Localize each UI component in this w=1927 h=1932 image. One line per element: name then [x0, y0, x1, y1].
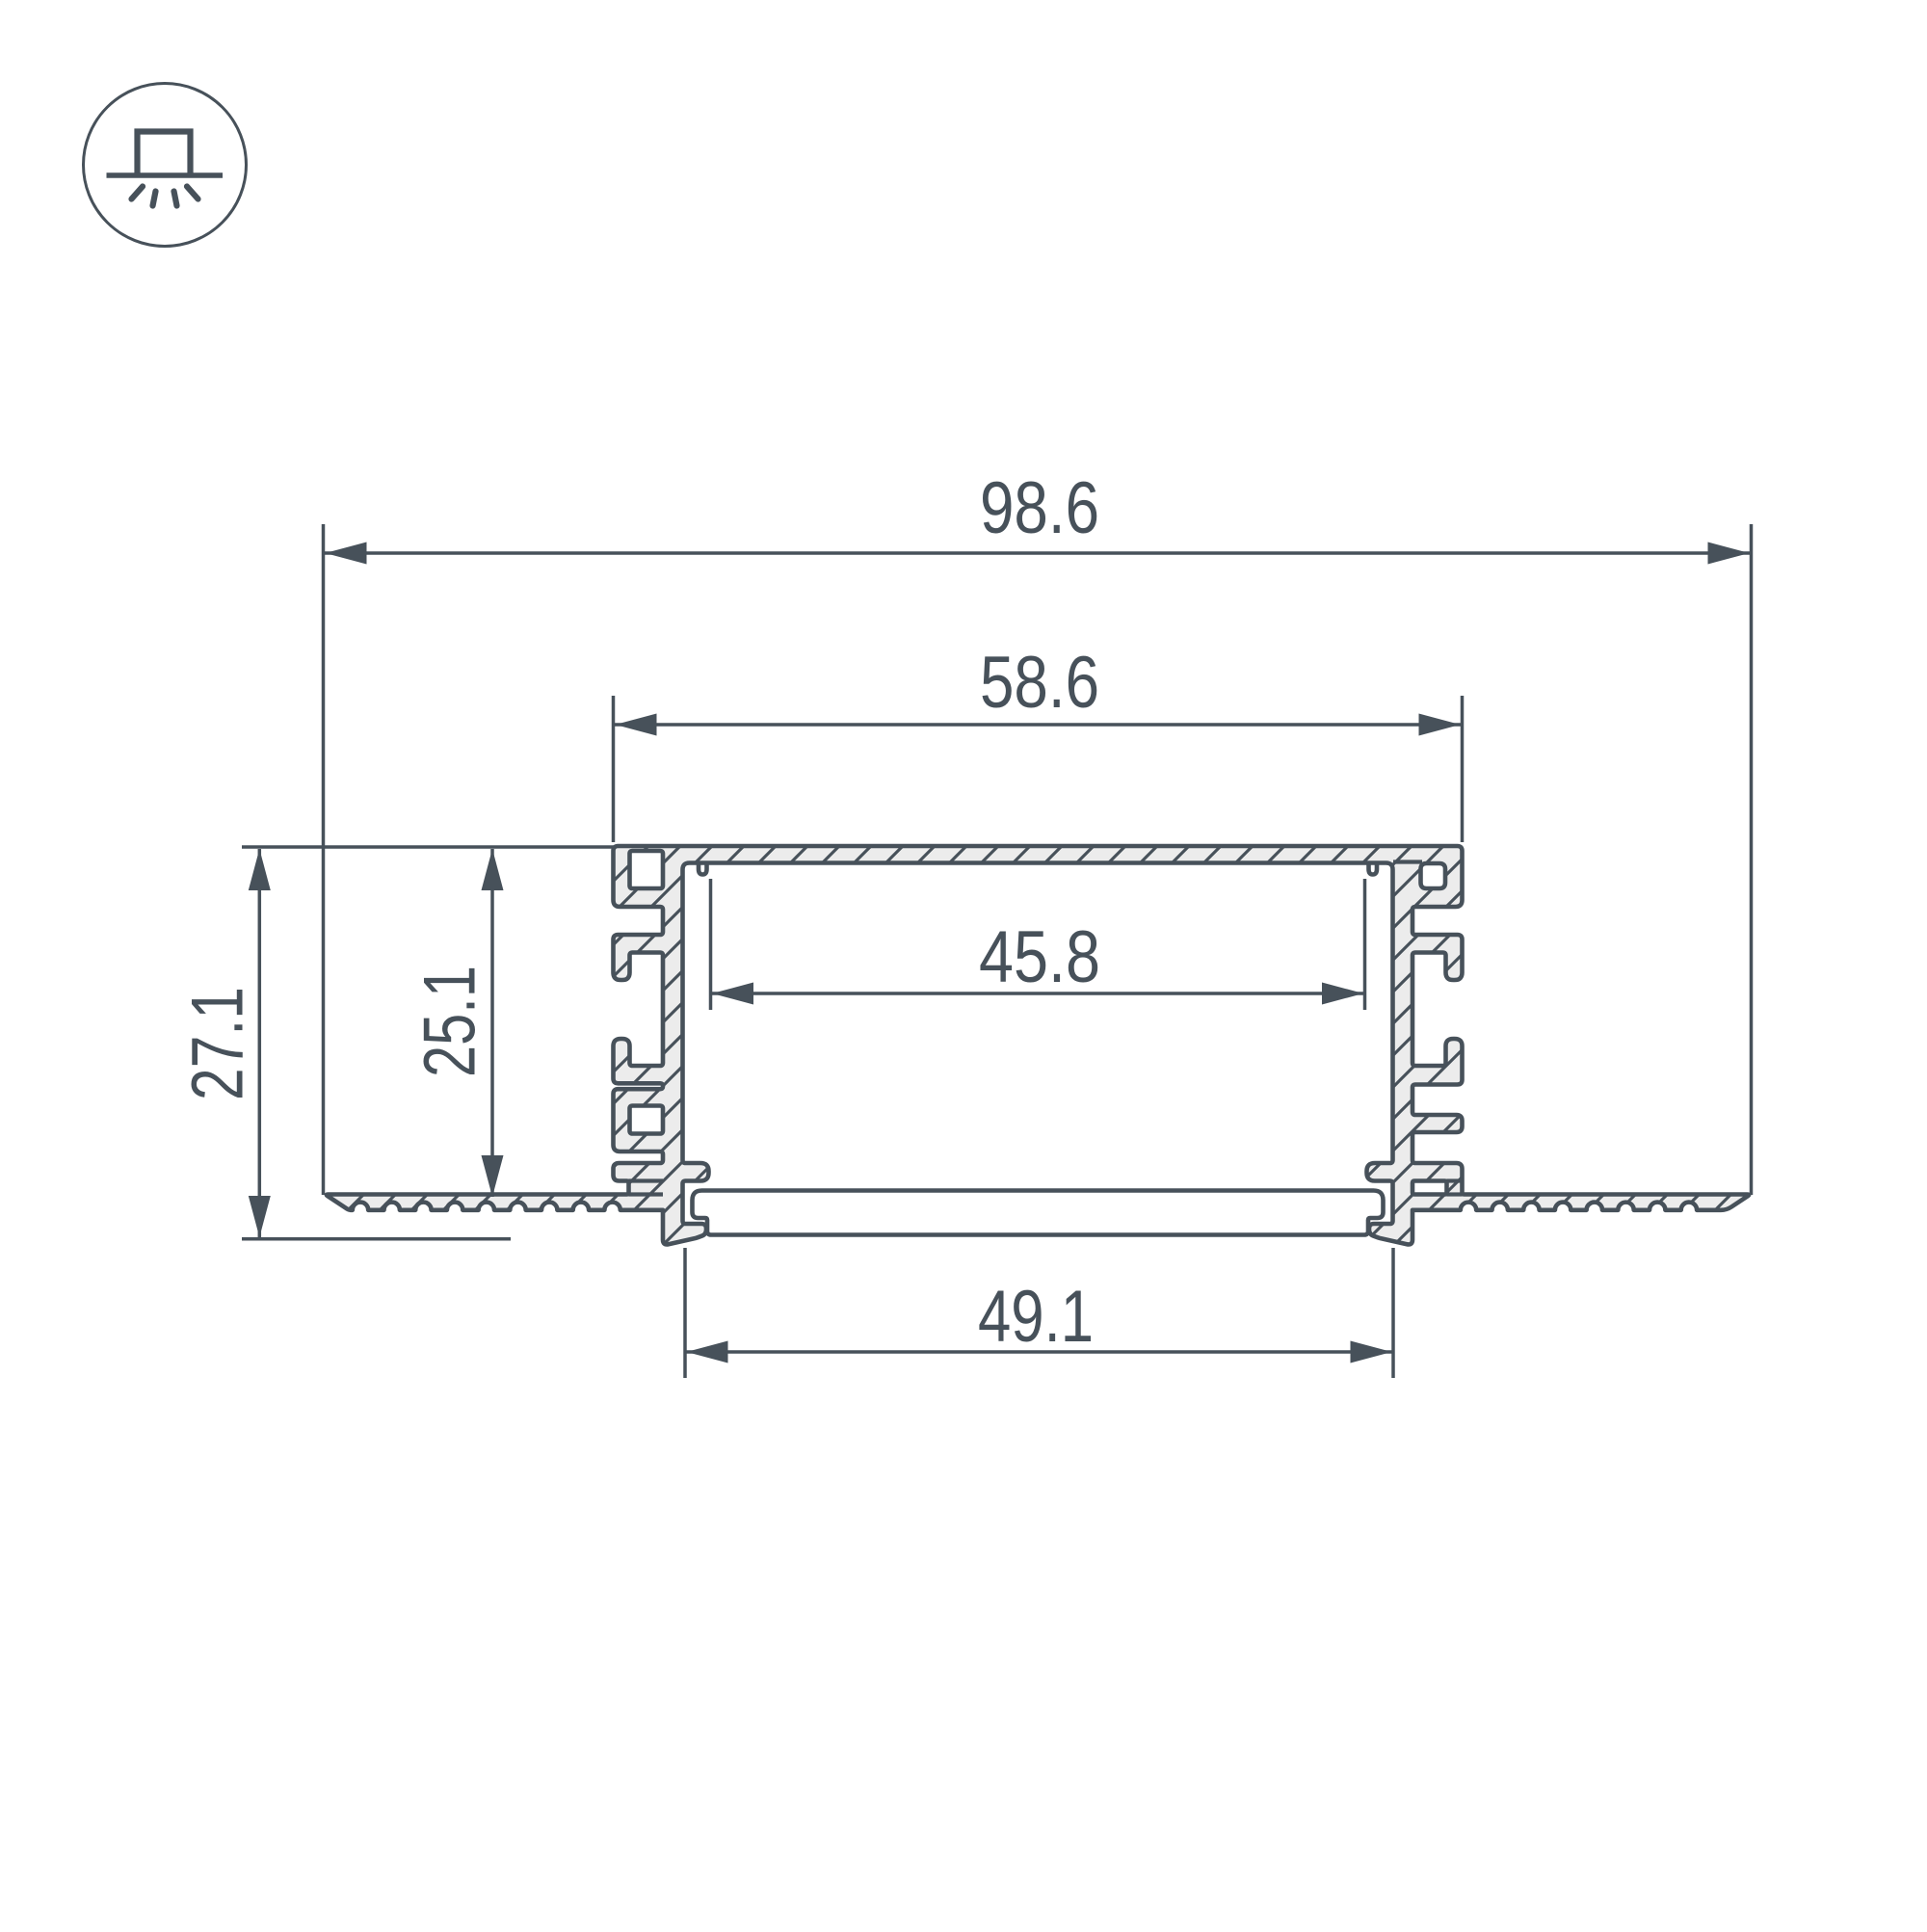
svg-text:27.1: 27.1	[177, 987, 259, 1100]
svg-text:49.1: 49.1	[978, 1276, 1094, 1358]
svg-text:25.1: 25.1	[409, 966, 491, 1077]
svg-text:58.6: 58.6	[980, 642, 1099, 724]
svg-text:98.6: 98.6	[980, 467, 1099, 549]
svg-text:45.8: 45.8	[979, 916, 1100, 998]
